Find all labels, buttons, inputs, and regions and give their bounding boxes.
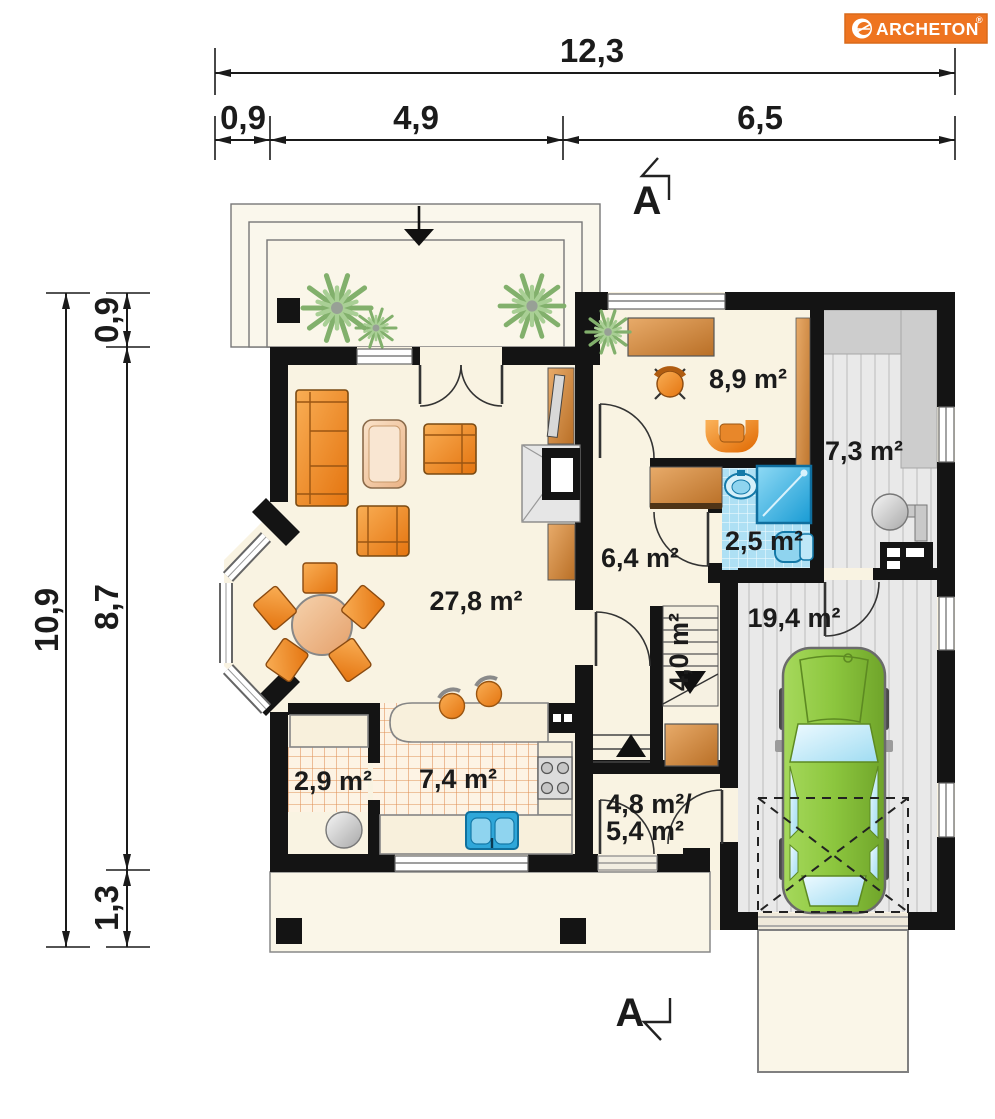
garage-window [939, 597, 954, 650]
section-letter: A [633, 179, 662, 223]
dim-total-width: 12,3 [560, 32, 624, 69]
dim-seg-2: 4,9 [393, 99, 439, 136]
car-rear-window [802, 876, 866, 906]
office-window [608, 294, 725, 309]
bathroom-area: 2,5 m² [725, 526, 803, 556]
porch [231, 204, 600, 347]
hall-wardrobe-front [650, 503, 722, 509]
hall-area: 6,4 m² [601, 543, 679, 573]
armchair [424, 424, 476, 474]
boiler-window [939, 407, 954, 462]
car [775, 648, 893, 913]
desk [628, 318, 714, 356]
brand-name: ARCHETON [876, 19, 979, 39]
utility-area-1: 4,8 m²/ [606, 789, 692, 819]
kitchen-window [395, 856, 528, 871]
section-mark-top: A [633, 158, 669, 223]
dimensions-top: 12,3 0,9 4,9 6,5 [215, 32, 955, 160]
porch-column [277, 298, 300, 323]
under-stairs-closet [665, 724, 718, 766]
dining-chair [303, 563, 337, 593]
coffee-table [363, 420, 406, 488]
water-tank [326, 812, 362, 848]
sofa [296, 390, 348, 506]
floor-plan-drawing: 27,8 m² 8,9 m² 7,3 m² 2,5 m² 6,4 m² 4,0 … [0, 0, 995, 1119]
terrace-column [276, 918, 302, 944]
kitchen-area: 7,4 m² [419, 764, 497, 794]
dim-left-seg-3: 1,3 [88, 885, 125, 931]
reading-chair [712, 420, 752, 446]
terrace-column [560, 918, 586, 944]
utility-door-sill [598, 856, 657, 870]
terrace [270, 872, 710, 952]
armchair [357, 506, 409, 556]
stove [538, 757, 572, 799]
pantry-area: 2,9 m² [294, 766, 372, 796]
utility-area-2: 5,4 m² [606, 816, 684, 846]
floor-plan-sheet: 27,8 m² 8,9 m² 7,3 m² 2,5 m² 6,4 m² 4,0 … [0, 0, 995, 1119]
brand-logo: ARCHETON ® [845, 14, 987, 43]
faucet-icon [737, 470, 745, 476]
shower [757, 466, 811, 523]
brand-logo-icon [852, 19, 872, 39]
driveway [758, 930, 908, 1072]
dim-seg-1: 0,9 [220, 99, 266, 136]
garage-area: 19,4 m² [747, 603, 840, 633]
registered-mark: ® [976, 15, 983, 25]
pantry-counter [290, 715, 368, 747]
office-area: 8,9 m² [709, 364, 787, 394]
wall-detail [564, 714, 572, 722]
car-windshield [790, 724, 878, 762]
section-letter: A [616, 991, 645, 1035]
hall-wardrobe [650, 467, 722, 507]
dim-total-height: 10,9 [28, 588, 65, 652]
office-chair [655, 369, 685, 399]
dim-left-seg-2: 8,7 [88, 584, 125, 630]
stairs-area: 4,0 m² [664, 613, 694, 691]
living-room-area: 27,8 m² [429, 586, 522, 616]
tv-cabinet [547, 368, 574, 444]
garage-gate-sill [758, 913, 908, 929]
dimensions-left: 10,9 0,9 8,7 1,3 [28, 293, 150, 947]
hall [650, 467, 722, 509]
kitchen-sink [466, 812, 518, 849]
living-window [357, 349, 412, 364]
dim-left-seg-1: 0,9 [88, 297, 125, 343]
dim-seg-3: 6,5 [737, 99, 783, 136]
bar-counter [390, 703, 548, 742]
garage-window [939, 783, 954, 837]
wall-detail [553, 714, 561, 722]
section-mark-bottom: A [616, 991, 670, 1040]
boiler-room-area: 7,3 m² [825, 436, 903, 466]
boiler [880, 542, 933, 573]
